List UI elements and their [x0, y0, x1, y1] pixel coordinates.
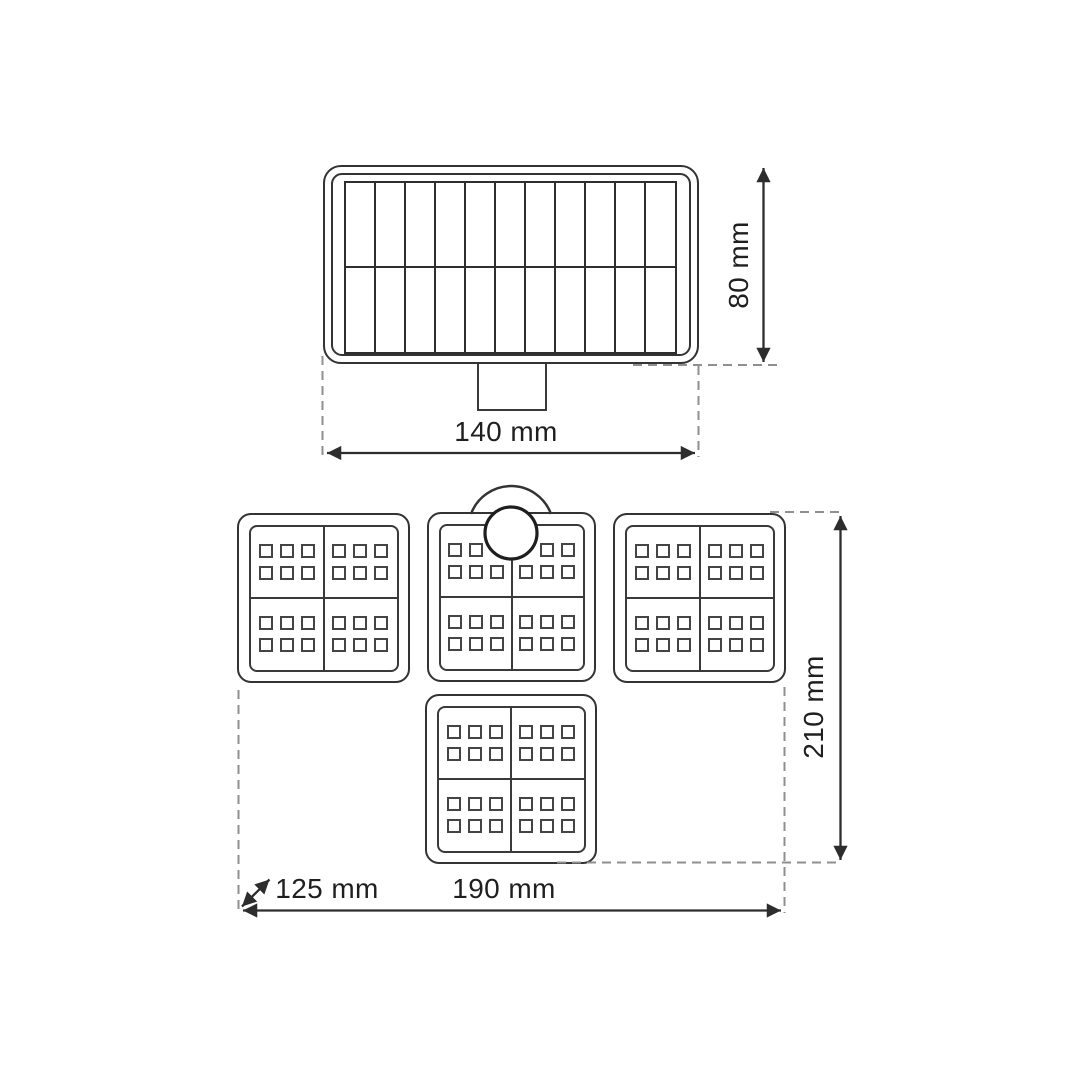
led-grid	[708, 616, 764, 652]
led-square	[540, 565, 554, 579]
solar-cell	[466, 268, 494, 351]
led-square	[561, 637, 575, 651]
led-quadrant-br	[511, 779, 584, 851]
led-quadrant-tr	[511, 708, 584, 780]
solar-cell	[376, 183, 404, 266]
led-grid	[332, 616, 388, 652]
dim-line-125mm-depth	[242, 880, 270, 907]
led-square	[280, 616, 294, 630]
led-square	[468, 819, 482, 833]
led-square	[280, 544, 294, 558]
led-grid	[259, 544, 315, 580]
led-square	[729, 638, 743, 652]
led-square	[259, 566, 273, 580]
led-grid	[519, 797, 575, 833]
solar-panel	[323, 165, 699, 364]
mounting-tab	[477, 362, 547, 411]
led-grid	[708, 544, 764, 580]
solar-cell	[466, 183, 494, 266]
solar-cell	[556, 183, 584, 266]
led-square	[750, 566, 764, 580]
solar-cell	[436, 268, 464, 351]
led-quadrant-tr	[324, 527, 397, 599]
led-square	[656, 638, 670, 652]
led-square	[259, 638, 273, 652]
solar-cell	[646, 268, 674, 351]
led-square	[677, 566, 691, 580]
led-square	[353, 566, 367, 580]
solar-cell	[376, 268, 404, 351]
led-square	[708, 638, 722, 652]
led-square	[489, 725, 503, 739]
led-square	[280, 566, 294, 580]
led-square	[750, 544, 764, 558]
led-square	[469, 565, 483, 579]
led-square	[635, 616, 649, 630]
sensor-dome-arc	[471, 486, 551, 514]
led-square	[374, 638, 388, 652]
led-panel-left	[237, 513, 410, 683]
led-square	[635, 638, 649, 652]
led-square	[374, 566, 388, 580]
solar-cell-grid	[344, 181, 677, 354]
led-grid	[519, 725, 575, 761]
led-square	[469, 615, 483, 629]
led-square	[519, 819, 533, 833]
led-quadrant-tr	[700, 527, 773, 599]
led-square	[301, 616, 315, 630]
led-square	[468, 797, 482, 811]
led-square	[519, 615, 533, 629]
led-square	[332, 566, 346, 580]
led-square	[447, 797, 461, 811]
solar-panel-frame	[331, 173, 691, 356]
solar-cell	[616, 183, 644, 266]
led-quadrant-bl	[251, 598, 324, 670]
led-quadrant-tr	[512, 526, 583, 598]
solar-cell	[346, 268, 374, 351]
led-square	[561, 543, 575, 557]
led-square	[708, 566, 722, 580]
led-square	[448, 637, 462, 651]
led-square	[448, 615, 462, 629]
led-square	[353, 638, 367, 652]
led-square	[490, 615, 504, 629]
solar-cell	[346, 183, 374, 266]
solar-cell	[586, 183, 614, 266]
led-quadrant-tl	[439, 708, 512, 780]
led-square	[561, 819, 575, 833]
led-square	[301, 638, 315, 652]
led-square	[540, 725, 554, 739]
led-square	[448, 543, 462, 557]
led-square	[677, 544, 691, 558]
led-square	[489, 819, 503, 833]
led-square	[540, 819, 554, 833]
led-square	[750, 616, 764, 630]
solar-cell	[436, 183, 464, 266]
led-panel-frame	[439, 524, 585, 671]
led-grid	[448, 543, 504, 579]
led-square	[280, 638, 294, 652]
solar-cell	[496, 268, 524, 351]
led-panel-frame	[249, 525, 399, 672]
solar-cell	[406, 268, 434, 351]
led-square	[677, 638, 691, 652]
led-quadrant-bl	[627, 598, 700, 670]
led-panel-center	[427, 512, 596, 682]
led-square	[519, 725, 533, 739]
led-square	[750, 638, 764, 652]
led-square	[540, 747, 554, 761]
led-square	[540, 637, 554, 651]
led-panel-frame	[625, 525, 775, 672]
dim-label-125mm: 125 mm	[275, 873, 379, 905]
led-square	[490, 637, 504, 651]
led-square	[635, 566, 649, 580]
solar-cell	[526, 183, 554, 266]
led-square	[468, 725, 482, 739]
led-quadrant-tl	[251, 527, 324, 599]
led-square	[729, 616, 743, 630]
led-square	[540, 543, 554, 557]
led-square	[468, 747, 482, 761]
led-square	[561, 615, 575, 629]
led-square	[374, 544, 388, 558]
led-square	[332, 616, 346, 630]
led-square	[519, 637, 533, 651]
led-panel-frame	[437, 706, 586, 853]
led-square	[490, 565, 504, 579]
dimension-diagram: 140 mm 80 mm 210 mm 190 mm 125 mm	[0, 0, 1080, 1080]
led-square	[469, 543, 483, 557]
led-square	[259, 616, 273, 630]
led-grid	[259, 616, 315, 652]
led-quadrant-br	[324, 598, 397, 670]
led-square	[519, 747, 533, 761]
led-square	[540, 615, 554, 629]
solar-cell	[406, 183, 434, 266]
led-grid	[635, 544, 691, 580]
led-square	[656, 616, 670, 630]
led-quadrant-br	[700, 598, 773, 670]
led-square	[561, 797, 575, 811]
led-square	[540, 797, 554, 811]
solar-cell	[586, 268, 614, 351]
led-square	[447, 725, 461, 739]
led-grid	[519, 615, 575, 651]
led-square	[301, 566, 315, 580]
dim-label-210mm: 210 mm	[798, 655, 830, 759]
led-square	[561, 725, 575, 739]
dim-label-140mm: 140 mm	[454, 416, 558, 448]
led-square	[489, 747, 503, 761]
led-quadrant-tl	[627, 527, 700, 599]
led-square	[447, 819, 461, 833]
led-grid	[447, 797, 503, 833]
solar-cell	[496, 183, 524, 266]
dim-label-190mm: 190 mm	[452, 873, 556, 905]
led-square	[374, 616, 388, 630]
led-square	[301, 544, 315, 558]
led-square	[469, 637, 483, 651]
dim-label-80mm: 80 mm	[723, 221, 755, 309]
led-square	[519, 797, 533, 811]
led-quadrant-tl	[441, 526, 512, 598]
led-panel-bottom	[425, 694, 597, 864]
led-square	[489, 797, 503, 811]
led-grid	[519, 543, 575, 579]
led-grid	[635, 616, 691, 652]
led-square	[353, 544, 367, 558]
solar-cell	[646, 183, 674, 266]
solar-cell	[526, 268, 554, 351]
led-panel-right	[613, 513, 786, 683]
led-square	[656, 566, 670, 580]
led-square	[448, 565, 462, 579]
led-square	[561, 565, 575, 579]
led-quadrant-bl	[439, 779, 512, 851]
led-square	[353, 616, 367, 630]
led-square	[635, 544, 649, 558]
led-quadrant-br	[512, 597, 583, 669]
led-square	[729, 544, 743, 558]
solar-cell	[616, 268, 644, 351]
led-square	[332, 544, 346, 558]
led-square	[677, 616, 691, 630]
led-grid	[332, 544, 388, 580]
led-square	[708, 544, 722, 558]
led-square	[259, 544, 273, 558]
led-grid	[447, 725, 503, 761]
led-square	[708, 616, 722, 630]
led-square	[447, 747, 461, 761]
solar-cell	[556, 268, 584, 351]
led-square	[729, 566, 743, 580]
led-grid	[448, 615, 504, 651]
led-square	[656, 544, 670, 558]
led-square	[332, 638, 346, 652]
led-square	[561, 747, 575, 761]
led-square	[519, 565, 533, 579]
led-quadrant-bl	[441, 597, 512, 669]
